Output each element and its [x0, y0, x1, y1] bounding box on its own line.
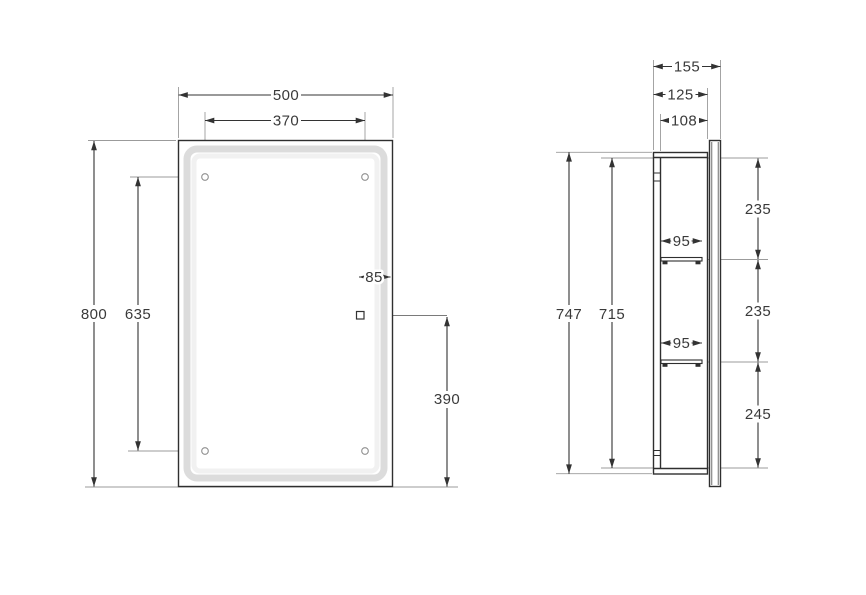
mirror-cabinet-technical-drawing: 500 370 800 635 85 390	[0, 0, 866, 595]
side-view: 155 125 108 747 715 95 95 235 235 245	[554, 59, 773, 487]
dim-front-power-height: 390	[434, 391, 460, 408]
shelf-pin	[663, 262, 668, 265]
power-connection-point	[357, 312, 365, 320]
dim-front-hole-spacing-v: 635	[125, 306, 151, 323]
mounting-hole-bottom-left	[202, 448, 209, 455]
shelf-lower	[661, 360, 702, 364]
shelf-pin	[696, 262, 701, 265]
shelf-pin	[663, 364, 668, 367]
dim-front-power-offset: 85	[365, 269, 383, 286]
dim-side-section-top: 235	[745, 201, 771, 218]
front-view: 500 370 800 635 85 390	[79, 87, 462, 487]
mirror-door-panel	[710, 141, 721, 487]
shelf-pin	[696, 364, 701, 367]
dim-side-section-bottom: 245	[745, 406, 771, 423]
dim-front-height: 800	[81, 306, 107, 323]
dim-side-section-middle: 235	[745, 303, 771, 320]
cabinet-body-outline	[654, 153, 708, 475]
dim-side-height-body: 747	[556, 306, 582, 323]
dim-side-height-interior: 715	[599, 306, 625, 323]
dim-side-shelf-upper-depth: 95	[673, 233, 691, 250]
dim-side-depth-body: 125	[667, 87, 693, 104]
mounting-hole-top-left	[202, 174, 209, 181]
mounting-hole-bottom-right	[362, 448, 369, 455]
dim-side-depth-overall: 155	[674, 59, 700, 76]
shelf-upper	[661, 258, 702, 262]
technical-drawing-page: 500 370 800 635 85 390	[0, 0, 866, 595]
dim-side-depth-interior: 108	[671, 113, 697, 130]
dim-front-hole-spacing-h: 370	[273, 113, 299, 130]
mounting-hole-top-right	[362, 174, 369, 181]
dim-front-width: 500	[273, 87, 299, 104]
dim-side-shelf-lower-depth: 95	[673, 335, 691, 352]
